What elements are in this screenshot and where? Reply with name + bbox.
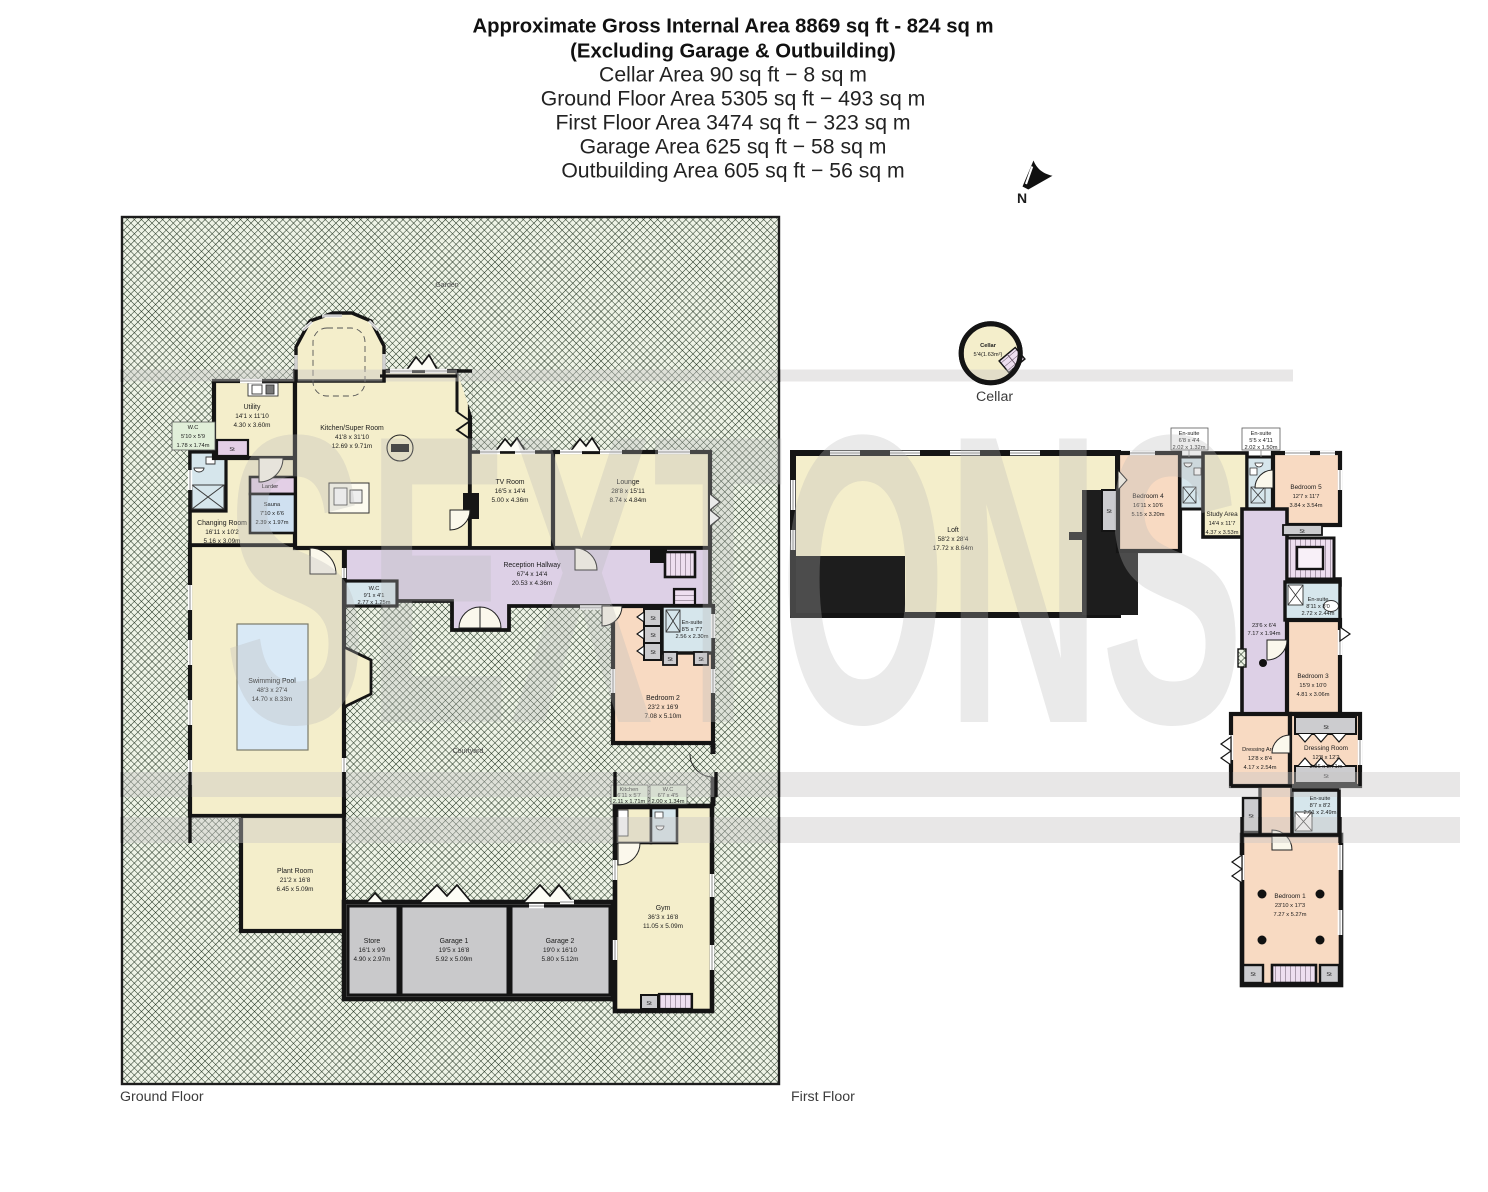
svg-text:2.61 x 2.49m: 2.61 x 2.49m <box>1304 810 1337 816</box>
svg-text:19'0 x 16'10: 19'0 x 16'10 <box>543 947 578 954</box>
svg-text:4.81 x 3.06m: 4.81 x 3.06m <box>1297 692 1330 698</box>
svg-text:23'6 x 6'4: 23'6 x 6'4 <box>1252 623 1276 629</box>
svg-text:W.C: W.C <box>188 425 199 431</box>
svg-text:23'10 x 17'3: 23'10 x 17'3 <box>1275 903 1305 909</box>
svg-text:Ground Floor: Ground Floor <box>120 1089 204 1105</box>
svg-text:St: St <box>646 1001 652 1007</box>
svg-text:En-suite: En-suite <box>1251 431 1272 437</box>
svg-text:11.05 x 5.09m: 11.05 x 5.09m <box>643 923 683 930</box>
svg-text:Bedroom 3: Bedroom 3 <box>1297 673 1329 680</box>
svg-text:8'11 x 8'0: 8'11 x 8'0 <box>1306 604 1330 610</box>
svg-text:4.90 x 2.97m: 4.90 x 2.97m <box>354 956 391 963</box>
svg-text:Cellar: Cellar <box>980 343 997 349</box>
svg-text:First Floor Area 3474 sq ft −: First Floor Area 3474 sq ft − 323 sq m <box>555 112 910 135</box>
svg-text:St: St <box>1323 725 1329 731</box>
svg-text:5.92 x 5.09m: 5.92 x 5.09m <box>436 956 473 963</box>
svg-text:Gym: Gym <box>656 905 671 912</box>
svg-text:3.86 x 3.71m: 3.86 x 3.71m <box>1310 764 1343 770</box>
svg-text:Garage Area 625 sq ft − 58 sq: Garage Area 625 sq ft − 58 sq m <box>580 136 887 159</box>
svg-text:5'10 x 5'9: 5'10 x 5'9 <box>181 434 205 440</box>
svg-text:21'2 x 16'8: 21'2 x 16'8 <box>280 877 311 884</box>
svg-text:First Floor: First Floor <box>791 1089 855 1105</box>
svg-text:6.45 x 5.09m: 6.45 x 5.09m <box>277 886 314 893</box>
svg-text:2.72 x 2.44m: 2.72 x 2.44m <box>1302 611 1335 617</box>
svg-text:SEXTONS: SEXTONS <box>224 349 1244 809</box>
svg-text:Dressing Room: Dressing Room <box>1304 745 1348 752</box>
svg-text:1.78 x 1.74m: 1.78 x 1.74m <box>177 443 210 449</box>
svg-text:8'7 x 8'2: 8'7 x 8'2 <box>1310 803 1331 809</box>
svg-text:St: St <box>1250 972 1256 978</box>
svg-text:Store: Store <box>364 938 381 945</box>
svg-text:5.80 x 5.12m: 5.80 x 5.12m <box>542 956 579 963</box>
svg-text:16'1 x 9'9: 16'1 x 9'9 <box>359 947 386 954</box>
svg-text:N: N <box>1017 190 1027 206</box>
svg-text:(Excluding Garage & Outbuildin: (Excluding Garage & Outbuilding) <box>570 41 896 63</box>
svg-text:St: St <box>1299 529 1305 535</box>
svg-text:En-suite: En-suite <box>1308 597 1329 603</box>
svg-text:15'9 x 10'0: 15'9 x 10'0 <box>1299 683 1326 689</box>
svg-text:7.27 x 5.27m: 7.27 x 5.27m <box>1274 912 1307 918</box>
svg-text:Garage 1: Garage 1 <box>440 938 469 945</box>
svg-text:Ground Floor Area 5305 sq ft −: Ground Floor Area 5305 sq ft − 493 sq m <box>541 88 926 111</box>
svg-text:36'3 x 16'8: 36'3 x 16'8 <box>648 914 679 921</box>
svg-text:Garage 2: Garage 2 <box>546 938 575 945</box>
svg-text:St: St <box>1326 972 1332 978</box>
svg-text:Approximate Gross Internal Are: Approximate Gross Internal Area 8869 sq … <box>472 16 993 38</box>
svg-text:Outbuilding Area 605 sq ft − 5: Outbuilding Area 605 sq ft − 56 sq m <box>561 160 904 183</box>
svg-text:12'8 x 12'2: 12'8 x 12'2 <box>1312 755 1339 761</box>
svg-text:7.17 x 1.94m: 7.17 x 1.94m <box>1248 631 1281 637</box>
svg-text:Bedroom 1: Bedroom 1 <box>1274 893 1306 900</box>
svg-text:Bedroom 5: Bedroom 5 <box>1290 484 1322 491</box>
svg-text:Cellar Area 90 sq ft − 8 sq m: Cellar Area 90 sq ft − 8 sq m <box>599 64 867 87</box>
svg-text:12'7 x 11'7: 12'7 x 11'7 <box>1293 494 1320 500</box>
svg-text:4.17 x 2.54m: 4.17 x 2.54m <box>1244 765 1277 771</box>
svg-text:12'8 x 8'4: 12'8 x 8'4 <box>1248 756 1272 762</box>
svg-text:5'5 x 4'11: 5'5 x 4'11 <box>1249 438 1273 444</box>
svg-text:19'5 x 16'8: 19'5 x 16'8 <box>439 947 470 954</box>
svg-text:Garden: Garden <box>435 282 458 289</box>
svg-text:Plant Room: Plant Room <box>277 868 313 875</box>
svg-text:3.84 x 3.54m: 3.84 x 3.54m <box>1290 503 1323 509</box>
